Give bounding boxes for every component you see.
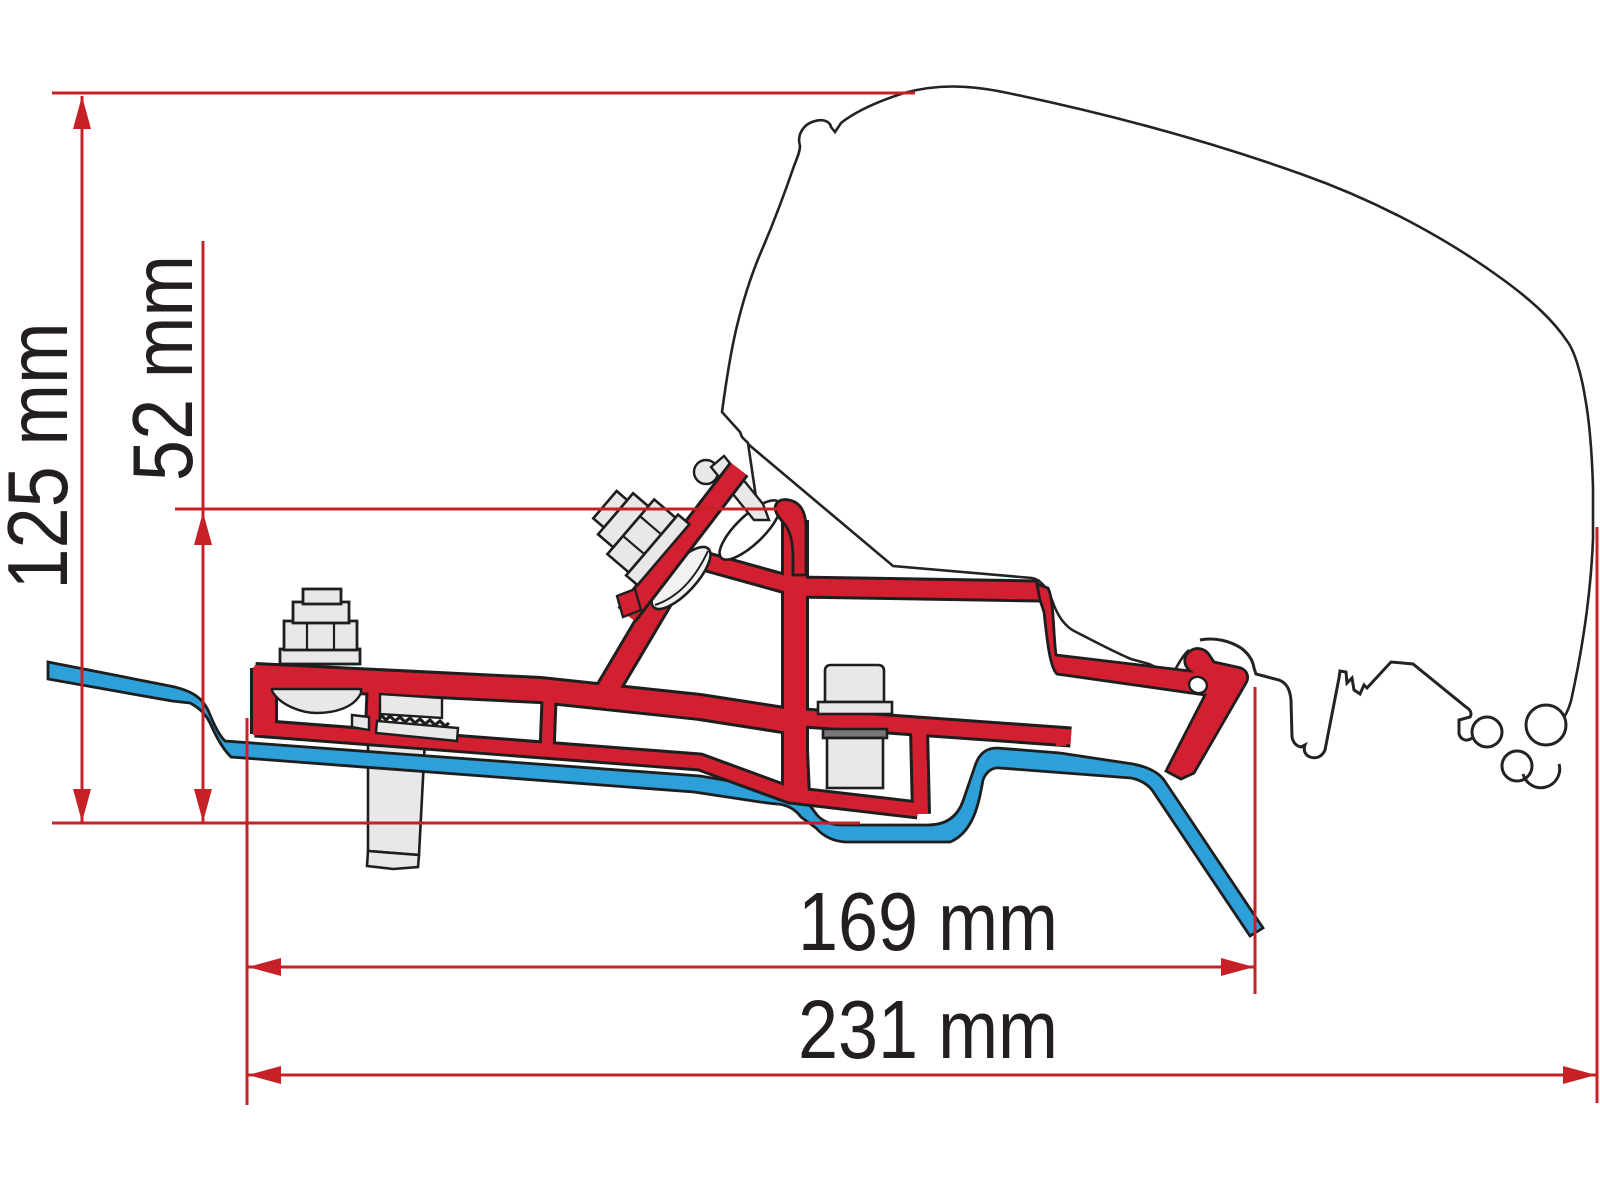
svg-text:231 mm: 231 mm: [798, 984, 1058, 1076]
svg-text:125 mm: 125 mm: [0, 322, 85, 589]
svg-text:52 mm: 52 mm: [115, 255, 210, 481]
svg-text:169 mm: 169 mm: [798, 876, 1058, 968]
